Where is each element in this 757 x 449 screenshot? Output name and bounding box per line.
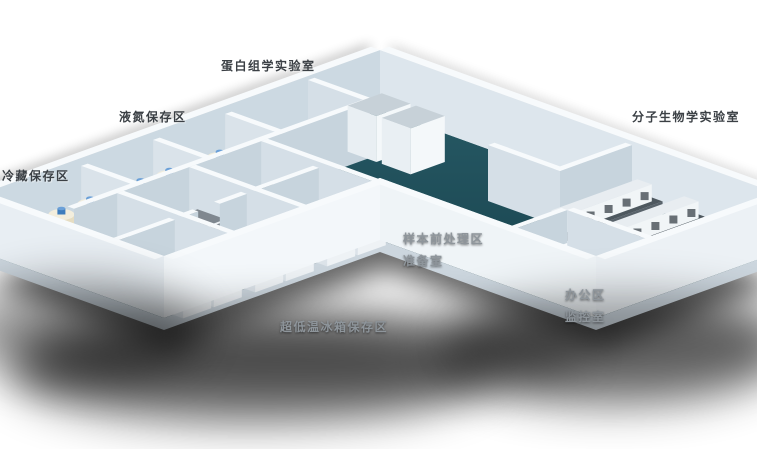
lab-floorplan-stage: 蛋白组学实验室 液氮保存区 冷藏保存区 分子生物学实验室 样本前处理区 准备室 … [0, 0, 757, 449]
label-monitoring-room: 监控室 [565, 308, 606, 325]
floorplan-3d-illustration [0, 0, 757, 449]
label-proteomics-lab: 蛋白组学实验室 [221, 57, 316, 74]
label-sample-pretreatment-area: 样本前处理区 [403, 230, 484, 247]
foreground-shadow [0, 280, 757, 394]
label-office-area: 办公区 [565, 286, 606, 303]
label-molecular-biology-lab: 分子生物学实验室 [632, 108, 740, 125]
label-ult-freezer-area: 超低温冰箱保存区 [280, 318, 388, 335]
label-liquid-nitrogen-area: 液氮保存区 [119, 108, 187, 125]
label-cold-storage-area: 冷藏保存区 [2, 167, 70, 184]
label-preparation-room: 准备室 [403, 252, 444, 269]
